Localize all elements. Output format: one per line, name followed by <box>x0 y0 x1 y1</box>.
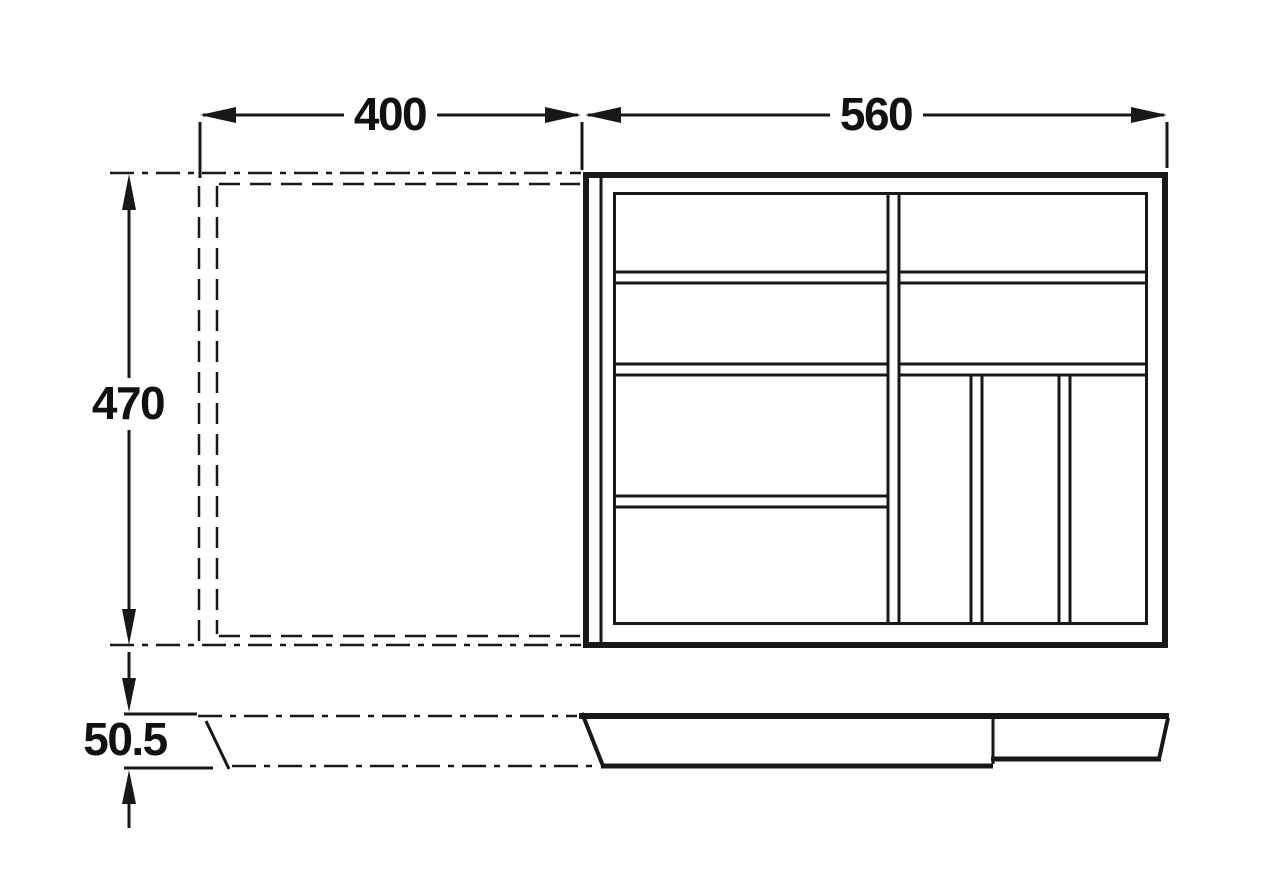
dim-50-5-arrow-down-icon <box>122 678 136 712</box>
dim-470: 470 <box>92 174 164 645</box>
dim-560-label: 560 <box>840 88 912 140</box>
profile-right-slant-edge <box>1159 718 1168 759</box>
dim-400-arrow-left-icon <box>200 107 236 123</box>
dim-400: 400 <box>200 88 581 178</box>
dim-50-5: 50.5 <box>83 652 213 828</box>
dim-560-arrow-right-icon <box>1131 107 1167 123</box>
dim-400-label: 400 <box>354 88 426 140</box>
dim-50-5-label: 50.5 <box>83 713 167 765</box>
profile-phantom-left-slant <box>206 721 229 769</box>
left-column-dividers <box>615 272 887 507</box>
main-vertical-divider <box>888 194 899 623</box>
tray-side-view <box>198 713 1169 769</box>
dim-400-arrow-right-icon <box>545 107 581 123</box>
tray-insert-frame <box>615 194 1147 624</box>
drawing-sheet: 400 560 470 <box>0 0 1268 896</box>
right-slot-dividers <box>971 376 1070 622</box>
profile-left-slant-edge <box>582 713 603 766</box>
dim-470-arrow-down-icon <box>122 609 136 645</box>
dim-560-arrow-left-icon <box>585 107 621 123</box>
dim-560: 560 <box>582 88 1167 170</box>
phantom-extension-outline <box>110 173 581 645</box>
tray-outer-wall <box>586 175 1165 645</box>
dim-470-label: 470 <box>92 377 164 429</box>
technical-drawing-canvas: 400 560 470 <box>0 0 1268 896</box>
dim-50-5-arrow-up-icon <box>122 770 136 804</box>
right-column-dividers <box>900 272 1146 375</box>
dim-470-arrow-up-icon <box>122 174 136 210</box>
tray-top-view <box>586 175 1165 645</box>
